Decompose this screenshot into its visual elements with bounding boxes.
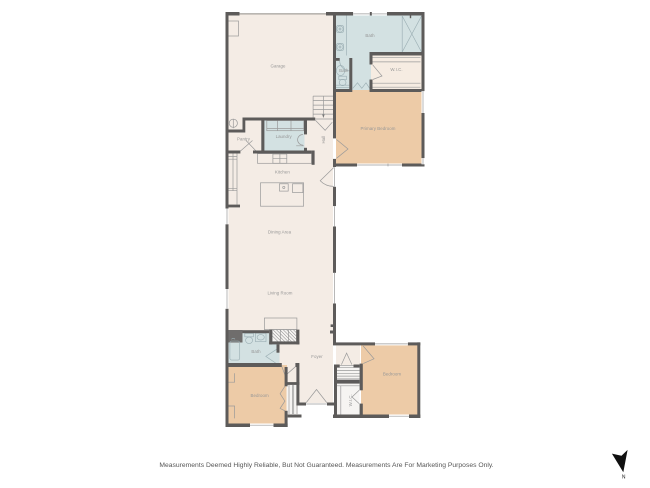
svg-text:Bedroom: Bedroom bbox=[383, 372, 401, 377]
svg-text:Pantry: Pantry bbox=[237, 137, 251, 142]
svg-text:Foyer: Foyer bbox=[311, 354, 323, 359]
svg-text:Living Room: Living Room bbox=[268, 291, 293, 296]
svg-text:Measurements Deemed Highly Rel: Measurements Deemed Highly Reliable, But… bbox=[159, 462, 493, 469]
svg-text:N: N bbox=[622, 475, 626, 481]
svg-text:Bedroom: Bedroom bbox=[251, 393, 269, 398]
svg-text:Primary Bedroom: Primary Bedroom bbox=[361, 126, 396, 131]
svg-text:Bath: Bath bbox=[251, 349, 261, 354]
svg-text:Hall: Hall bbox=[321, 136, 326, 144]
svg-text:Garage: Garage bbox=[271, 64, 286, 69]
svg-text:Kitchen: Kitchen bbox=[275, 169, 291, 174]
svg-text:Laundry: Laundry bbox=[276, 134, 293, 139]
svg-text:Bath: Bath bbox=[339, 68, 349, 73]
svg-text:W.I.C.: W.I.C. bbox=[348, 394, 353, 406]
svg-text:Bath: Bath bbox=[365, 33, 375, 38]
svg-text:Dining Area: Dining Area bbox=[268, 230, 292, 235]
svg-text:W.I.C.: W.I.C. bbox=[390, 67, 402, 72]
